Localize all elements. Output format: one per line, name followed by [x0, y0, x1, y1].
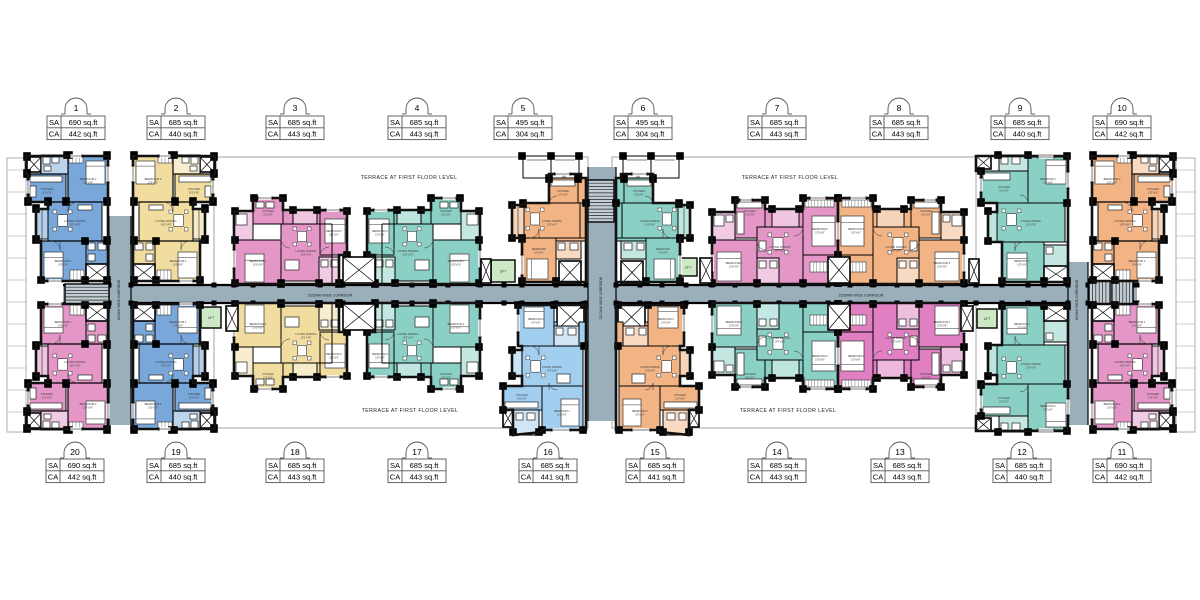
svg-text:KITCHEN: KITCHEN: [744, 209, 756, 213]
svg-text:SA: SA: [496, 118, 506, 127]
svg-text:10'0"x9'6": 10'0"x9'6": [645, 224, 656, 227]
svg-text:10'0"x9'6": 10'0"x9'6": [937, 266, 948, 269]
svg-text:BEDROOM 2: BEDROOM 2: [326, 229, 342, 233]
svg-text:10'0"x9'6": 10'0"x9'6": [517, 399, 527, 401]
svg-text:10'0"x9'6": 10'0"x9'6": [402, 253, 413, 257]
svg-text:10'0"x9'6": 10'0"x9'6": [815, 233, 825, 235]
svg-text:LIVING DINING: LIVING DINING: [542, 365, 562, 369]
svg-text:10'0"x9'6": 10'0"x9'6": [1119, 364, 1130, 368]
svg-text:LIVING DINING: LIVING DINING: [155, 360, 177, 364]
svg-text:LIVING DINING: LIVING DINING: [1021, 219, 1041, 223]
svg-text:690 sq.ft: 690 sq.ft: [69, 118, 99, 127]
svg-text:BEDROOM 1: BEDROOM 1: [1129, 259, 1146, 263]
svg-text:KITCHEN: KITCHEN: [744, 372, 756, 376]
svg-text:SA: SA: [1095, 118, 1105, 127]
svg-text:10'0"x9'6": 10'0"x9'6": [1043, 410, 1053, 412]
svg-text:690 sq.ft: 690 sq.ft: [1115, 461, 1145, 470]
svg-text:14: 14: [772, 447, 782, 457]
svg-text:10'0"x9'6": 10'0"x9'6": [1148, 397, 1159, 400]
svg-text:10'0"x9'6": 10'0"x9'6": [148, 407, 159, 410]
svg-text:CA: CA: [49, 130, 59, 139]
svg-text:BEDROOM: BEDROOM: [532, 247, 545, 251]
svg-text:BEDROOM 1: BEDROOM 1: [934, 320, 951, 324]
svg-text:CA: CA: [873, 473, 883, 482]
svg-text:440 sq.ft: 440 sq.ft: [169, 473, 199, 482]
svg-text:440 sq.ft: 440 sq.ft: [1013, 130, 1043, 139]
svg-text:10'0"x9'6": 10'0"x9'6": [1026, 224, 1037, 227]
svg-text:10'0"x9'6": 10'0"x9'6": [451, 264, 462, 267]
svg-text:10'0"x9'6": 10'0"x9'6": [58, 325, 69, 328]
svg-text:10'0"x9'6": 10'0"x9'6": [451, 327, 462, 330]
svg-text:10'0"x9'6": 10'0"x9'6": [1148, 192, 1159, 195]
svg-text:10'0"x9'6": 10'0"x9'6": [1017, 265, 1027, 267]
svg-text:TERRACE AT FIRST FLOOR LEVEL: TERRACE AT FIRST FLOOR LEVEL: [361, 175, 458, 181]
svg-text:443 sq.ft: 443 sq.ft: [892, 130, 922, 139]
svg-text:20: 20: [70, 447, 80, 457]
svg-text:442 sq.ft: 442 sq.ft: [1115, 130, 1145, 139]
svg-text:LIVING DINING: LIVING DINING: [295, 249, 317, 253]
svg-text:LIFT: LIFT: [984, 317, 991, 321]
svg-text:SA: SA: [873, 461, 883, 470]
svg-text:10'0"x9'6": 10'0"x9'6": [547, 224, 558, 227]
svg-text:KITCHEN: KITCHEN: [557, 189, 569, 193]
svg-text:SA: SA: [390, 118, 400, 127]
svg-text:KITCHEN: KITCHEN: [440, 209, 452, 213]
svg-text:KITCHEN: KITCHEN: [1147, 187, 1159, 191]
svg-text:LIVING DINING: LIVING DINING: [1021, 362, 1041, 366]
svg-text:SA: SA: [268, 118, 278, 127]
svg-text:LIVING DINING: LIVING DINING: [769, 336, 791, 340]
svg-text:10'0"x9'6": 10'0"x9'6": [253, 327, 264, 330]
svg-text:BEDROOM 2: BEDROOM 2: [372, 229, 388, 233]
svg-text:685 sq.ft: 685 sq.ft: [648, 461, 678, 470]
svg-text:441 sq.ft: 441 sq.ft: [648, 473, 678, 482]
svg-text:10'0"x9'6": 10'0"x9'6": [999, 191, 1009, 193]
svg-text:443 sq.ft: 443 sq.ft: [410, 473, 440, 482]
svg-text:443 sq.ft: 443 sq.ft: [288, 130, 318, 139]
svg-text:LIVING DINING: LIVING DINING: [769, 245, 791, 249]
svg-text:BEDROOM 1: BEDROOM 1: [448, 322, 465, 326]
svg-text:SA: SA: [521, 461, 531, 470]
svg-text:4: 4: [415, 103, 420, 113]
svg-text:CA: CA: [616, 130, 626, 139]
svg-text:BEDROOM 1: BEDROOM 1: [934, 261, 951, 265]
svg-text:LIVING DINING: LIVING DINING: [295, 332, 317, 336]
svg-text:CA: CA: [149, 130, 159, 139]
svg-text:KITCHEN: KITCHEN: [633, 189, 645, 193]
svg-text:10'0"x9'6": 10'0"x9'6": [815, 360, 825, 362]
svg-text:443 sq.ft: 443 sq.ft: [410, 130, 440, 139]
svg-text:BEDROOM 2: BEDROOM 2: [326, 352, 342, 356]
svg-text:SA: SA: [268, 461, 278, 470]
svg-text:685 sq.ft: 685 sq.ft: [770, 461, 800, 470]
svg-text:SA: SA: [628, 461, 638, 470]
svg-text:BEDROOM 1: BEDROOM 1: [726, 261, 743, 265]
svg-text:10'0"x9'6": 10'0"x9'6": [745, 215, 755, 217]
svg-text:443 sq.ft: 443 sq.ft: [288, 473, 318, 482]
svg-text:BEDROOM 1: BEDROOM 1: [554, 409, 570, 413]
svg-text:SA: SA: [995, 461, 1005, 470]
svg-text:10'0"x9'6": 10'0"x9'6": [1026, 367, 1037, 370]
svg-text:10'0"x9'6": 10'0"x9'6": [634, 195, 644, 197]
svg-text:BEDROOM 2: BEDROOM 2: [1104, 177, 1121, 181]
svg-text:13: 13: [895, 447, 905, 457]
svg-text:10'0"x9'6": 10'0"x9'6": [534, 253, 544, 255]
svg-text:685 sq.ft: 685 sq.ft: [410, 118, 440, 127]
svg-text:BEDROOM: BEDROOM: [656, 247, 669, 251]
svg-text:690 sq.ft: 690 sq.ft: [68, 461, 98, 470]
svg-text:10'0"x9'6": 10'0"x9'6": [890, 249, 901, 253]
svg-text:KITCHEN: KITCHEN: [188, 187, 200, 191]
svg-text:CA: CA: [1095, 473, 1105, 482]
svg-text:LIVING DINING: LIVING DINING: [542, 219, 562, 223]
svg-text:10'0"x9'6": 10'0"x9'6": [531, 323, 541, 325]
svg-text:LIFT: LIFT: [685, 266, 692, 270]
svg-text:TERRACE AT FIRST FLOOR LEVEL: TERRACE AT FIRST FLOOR LEVEL: [742, 175, 839, 181]
svg-text:5: 5: [521, 103, 526, 113]
svg-text:10'0"x9'6": 10'0"x9'6": [558, 195, 568, 197]
svg-text:11: 11: [1118, 447, 1127, 457]
svg-text:10'0"x9'6": 10'0"x9'6": [69, 364, 80, 368]
svg-text:SA: SA: [750, 461, 760, 470]
svg-text:10'0"x9'6": 10'0"x9'6": [557, 415, 567, 417]
svg-text:KITCHEN: KITCHEN: [674, 393, 686, 397]
svg-text:BEDROOM 1: BEDROOM 1: [170, 320, 187, 324]
svg-text:18: 18: [290, 447, 300, 457]
svg-text:10'0"x9'6": 10'0"x9'6": [263, 378, 273, 380]
svg-text:10'0"x9'6": 10'0"x9'6": [83, 182, 94, 185]
svg-text:10'0"x9'6": 10'0"x9'6": [890, 340, 901, 344]
svg-text:10'0"x9'6": 10'0"x9'6": [851, 233, 861, 235]
svg-text:BEDROOM 1: BEDROOM 1: [250, 259, 267, 263]
svg-text:10'0"x9'6": 10'0"x9'6": [729, 266, 740, 269]
svg-text:10'0"x9'6": 10'0"x9'6": [1132, 264, 1143, 267]
svg-text:CA: CA: [750, 130, 760, 139]
svg-text:KITCHEN: KITCHEN: [516, 393, 528, 397]
svg-text:10'0"x9'6": 10'0"x9'6": [547, 370, 558, 373]
svg-text:CA: CA: [496, 130, 506, 139]
svg-text:443 sq.ft: 443 sq.ft: [770, 130, 800, 139]
svg-text:LIVING DINING: LIVING DINING: [397, 332, 419, 336]
svg-text:LIFT: LIFT: [500, 270, 507, 274]
svg-text:KITCHEN: KITCHEN: [998, 185, 1010, 189]
svg-text:440 sq.ft: 440 sq.ft: [1015, 473, 1045, 482]
svg-text:BEDROOM 2: BEDROOM 2: [372, 352, 388, 356]
svg-text:LIVING DINING: LIVING DINING: [397, 249, 419, 253]
svg-text:10'0"x9'6": 10'0"x9'6": [189, 397, 200, 400]
svg-text:KITCHEN: KITCHEN: [920, 209, 932, 213]
svg-text:BEDROOM 2: BEDROOM 2: [145, 177, 162, 181]
svg-text:SA: SA: [390, 461, 400, 470]
svg-text:BEDROOM 2: BEDROOM 2: [848, 227, 864, 231]
svg-text:685 sq.ft: 685 sq.ft: [288, 118, 318, 127]
svg-text:BEDROOM 1: BEDROOM 1: [1129, 320, 1146, 324]
svg-text:685 sq.ft: 685 sq.ft: [893, 461, 923, 470]
svg-text:BEDROOM 1: BEDROOM 1: [1040, 404, 1056, 408]
svg-text:10'0"x9'6": 10'0"x9'6": [1132, 325, 1143, 328]
svg-text:KITCHEN: KITCHEN: [188, 392, 200, 396]
svg-text:10'0"x9'6": 10'0"x9'6": [148, 182, 159, 185]
svg-text:BEDROOM 2: BEDROOM 2: [80, 177, 97, 181]
svg-text:10'0"x9'6": 10'0"x9'6": [661, 323, 671, 325]
svg-text:10'0"x9'6": 10'0"x9'6": [173, 325, 184, 328]
svg-text:10'0"x9'6": 10'0"x9'6": [375, 358, 385, 360]
svg-text:BEDROOM 1: BEDROOM 1: [55, 320, 72, 324]
svg-text:10'0"x9'6": 10'0"x9'6": [58, 264, 69, 267]
svg-text:685 sq.ft: 685 sq.ft: [169, 118, 199, 127]
svg-text:LIVING DINING: LIVING DINING: [155, 219, 177, 223]
svg-text:10'0"x9'6": 10'0"x9'6": [745, 378, 755, 380]
svg-text:BEDROOM 1: BEDROOM 1: [726, 320, 743, 324]
svg-text:10'0"x9'6": 10'0"x9'6": [441, 215, 451, 217]
svg-text:SA: SA: [1095, 461, 1105, 470]
svg-text:10'0"x9'6": 10'0"x9'6": [729, 325, 740, 328]
svg-text:BEDROOM 2: BEDROOM 2: [812, 227, 828, 231]
svg-text:10'0"x9'6": 10'0"x9'6": [402, 336, 413, 340]
svg-text:16: 16: [543, 447, 553, 457]
svg-text:10'0"x9'6": 10'0"x9'6": [1107, 182, 1118, 185]
svg-text:10'0"x9'6": 10'0"x9'6": [253, 264, 264, 267]
svg-text:10'0"x9'6": 10'0"x9'6": [160, 364, 171, 368]
svg-text:10'0"x9'6": 10'0"x9'6": [375, 235, 385, 237]
svg-text:TERRACE AT FIRST FLOOR LEVEL: TERRACE AT FIRST FLOOR LEVEL: [362, 408, 459, 414]
svg-text:10'0"x9'6": 10'0"x9'6": [937, 325, 948, 328]
svg-text:10'0"x9'6": 10'0"x9'6": [675, 399, 685, 401]
svg-text:KITCHEN: KITCHEN: [440, 372, 452, 376]
svg-text:BEDROOM 2: BEDROOM 2: [528, 317, 544, 321]
svg-text:SA: SA: [872, 118, 882, 127]
svg-text:TERRACE AT FIRST FLOOR LEVEL: TERRACE AT FIRST FLOOR LEVEL: [740, 408, 837, 414]
svg-text:3: 3: [293, 103, 298, 113]
svg-text:BEDROOM 2: BEDROOM 2: [812, 354, 828, 358]
svg-text:LIVING DINING: LIVING DINING: [64, 360, 86, 364]
svg-text:1525MM WIDE CORRIDOR: 1525MM WIDE CORRIDOR: [839, 294, 884, 298]
svg-text:440 sq.ft: 440 sq.ft: [169, 130, 199, 139]
svg-text:CA: CA: [268, 473, 278, 482]
svg-text:1: 1: [74, 103, 79, 113]
svg-text:BEDROOM 1: BEDROOM 1: [55, 259, 72, 263]
svg-text:10'0"x9'6": 10'0"x9'6": [42, 192, 53, 195]
svg-text:LIVING DINING: LIVING DINING: [1114, 360, 1136, 364]
svg-text:10'0"x9'6": 10'0"x9'6": [1043, 183, 1053, 185]
svg-text:10'0"x9'6": 10'0"x9'6": [160, 223, 171, 227]
svg-text:CA: CA: [390, 473, 400, 482]
svg-text:690 sq.ft: 690 sq.ft: [1115, 118, 1145, 127]
svg-text:1525MM WIDE CORRIDOR: 1525MM WIDE CORRIDOR: [308, 294, 353, 298]
svg-text:2: 2: [174, 103, 179, 113]
svg-text:BEDROOM 1: BEDROOM 1: [170, 259, 187, 263]
svg-text:BEDROOM 2: BEDROOM 2: [1104, 402, 1121, 406]
svg-text:SA: SA: [149, 461, 159, 470]
svg-text:442 sq.ft: 442 sq.ft: [69, 130, 99, 139]
svg-text:SA: SA: [993, 118, 1003, 127]
svg-text:10'0"x9'6": 10'0"x9'6": [921, 378, 931, 380]
svg-text:442 sq.ft: 442 sq.ft: [68, 473, 98, 482]
svg-text:443 sq.ft: 443 sq.ft: [893, 473, 923, 482]
svg-text:10'0"x9'6": 10'0"x9'6": [83, 407, 94, 410]
svg-text:LIVING DINING: LIVING DINING: [64, 219, 86, 223]
svg-text:10'0"x9'6": 10'0"x9'6": [774, 340, 785, 344]
svg-text:10'0"x9'6": 10'0"x9'6": [300, 253, 311, 257]
svg-text:12: 12: [1017, 447, 1027, 457]
svg-text:LIVING DINING: LIVING DINING: [1114, 219, 1136, 223]
svg-text:10'0"x9'6": 10'0"x9'6": [300, 336, 311, 340]
svg-text:10'0"x9'6": 10'0"x9'6": [851, 360, 861, 362]
svg-text:KITCHEN: KITCHEN: [41, 392, 53, 396]
svg-text:LIVING DINING: LIVING DINING: [640, 219, 660, 223]
svg-text:KITCHEN: KITCHEN: [41, 187, 53, 191]
svg-text:9: 9: [1018, 103, 1023, 113]
svg-text:KITCHEN: KITCHEN: [920, 372, 932, 376]
svg-text:BEDROOM 2: BEDROOM 2: [658, 317, 674, 321]
svg-text:CA: CA: [1095, 130, 1105, 139]
svg-text:443 sq.ft: 443 sq.ft: [770, 473, 800, 482]
svg-text:10'0"x9'6": 10'0"x9'6": [42, 397, 53, 400]
svg-text:17: 17: [412, 447, 422, 457]
svg-text:7: 7: [775, 103, 780, 113]
svg-text:LIVING DINING: LIVING DINING: [640, 365, 660, 369]
svg-text:SA: SA: [149, 118, 159, 127]
svg-text:10'0"x9'6": 10'0"x9'6": [329, 235, 339, 237]
svg-text:685 sq.ft: 685 sq.ft: [169, 461, 199, 470]
svg-text:SA: SA: [49, 118, 59, 127]
svg-text:685 sq.ft: 685 sq.ft: [892, 118, 922, 127]
svg-text:685 sq.ft: 685 sq.ft: [770, 118, 800, 127]
svg-text:10'0"x9'6": 10'0"x9'6": [774, 249, 785, 253]
svg-text:BEDROOM 2: BEDROOM 2: [80, 402, 97, 406]
svg-text:495 sq.ft: 495 sq.ft: [516, 118, 546, 127]
svg-text:10: 10: [1117, 103, 1127, 113]
svg-text:KITCHEN: KITCHEN: [262, 372, 274, 376]
svg-text:10'0"x9'6": 10'0"x9'6": [1017, 328, 1027, 330]
svg-text:685 sq.ft: 685 sq.ft: [288, 461, 318, 470]
svg-text:BEDROOM 2: BEDROOM 2: [1014, 322, 1030, 326]
svg-text:CA: CA: [268, 130, 278, 139]
svg-text:LIVING DINING: LIVING DINING: [885, 245, 907, 249]
svg-text:450MM WIDE CORRIDOR: 450MM WIDE CORRIDOR: [117, 279, 121, 320]
svg-text:KITCHEN: KITCHEN: [262, 209, 274, 213]
svg-text:CA: CA: [993, 130, 1003, 139]
svg-text:441 sq.ft: 441 sq.ft: [541, 473, 571, 482]
svg-text:CA: CA: [628, 473, 638, 482]
svg-text:BEDROOM 2: BEDROOM 2: [1014, 259, 1030, 263]
svg-text:8: 8: [897, 103, 902, 113]
svg-text:10'0"x9'6": 10'0"x9'6": [999, 402, 1009, 404]
svg-text:10'0"x9'6": 10'0"x9'6": [441, 378, 451, 380]
svg-text:CA: CA: [521, 473, 531, 482]
svg-text:BEDROOM 1: BEDROOM 1: [632, 409, 648, 413]
svg-text:15: 15: [650, 447, 660, 457]
svg-text:10'0"x9'6": 10'0"x9'6": [645, 370, 656, 373]
svg-text:2200MM WIDE CORRIDOR: 2200MM WIDE CORRIDOR: [599, 276, 603, 319]
svg-text:304 sq.ft: 304 sq.ft: [516, 130, 546, 139]
svg-text:KITCHEN: KITCHEN: [998, 396, 1010, 400]
svg-text:BEDROOM 1: BEDROOM 1: [1040, 177, 1056, 181]
svg-text:495 sq.ft: 495 sq.ft: [636, 118, 666, 127]
svg-text:BEDROOM 2: BEDROOM 2: [848, 354, 864, 358]
svg-text:LIVING DINING: LIVING DINING: [885, 336, 907, 340]
svg-text:CA: CA: [48, 473, 58, 482]
svg-text:10'0"x9'6": 10'0"x9'6": [329, 358, 339, 360]
svg-text:10'0"x9'6": 10'0"x9'6": [1119, 223, 1130, 227]
svg-text:19: 19: [171, 447, 181, 457]
svg-text:10'0"x9'6": 10'0"x9'6": [635, 415, 645, 417]
svg-text:SA: SA: [616, 118, 626, 127]
svg-text:CA: CA: [750, 473, 760, 482]
svg-text:10'0"x9'6": 10'0"x9'6": [658, 253, 668, 255]
svg-text:BEDROOM 1: BEDROOM 1: [448, 259, 465, 263]
svg-text:685 sq.ft: 685 sq.ft: [541, 461, 571, 470]
svg-text:685 sq.ft: 685 sq.ft: [1013, 118, 1043, 127]
svg-text:KITCHEN: KITCHEN: [1147, 392, 1159, 396]
svg-text:450MM WIDE CORRIDOR: 450MM WIDE CORRIDOR: [1075, 279, 1079, 320]
svg-text:CA: CA: [872, 130, 882, 139]
svg-text:BEDROOM 2: BEDROOM 2: [145, 402, 162, 406]
svg-text:LIFT: LIFT: [208, 316, 215, 320]
svg-text:442 sq.ft: 442 sq.ft: [1115, 473, 1145, 482]
svg-text:SA: SA: [48, 461, 58, 470]
svg-text:CA: CA: [149, 473, 159, 482]
svg-text:6: 6: [641, 103, 646, 113]
svg-text:10'0"x9'6": 10'0"x9'6": [921, 215, 931, 217]
svg-text:BEDROOM 1: BEDROOM 1: [250, 322, 267, 326]
svg-text:685 sq.ft: 685 sq.ft: [410, 461, 440, 470]
svg-text:SA: SA: [750, 118, 760, 127]
svg-text:685 sq.ft: 685 sq.ft: [1015, 461, 1045, 470]
svg-text:CA: CA: [390, 130, 400, 139]
svg-text:CA: CA: [995, 473, 1005, 482]
svg-text:10'0"x9'6": 10'0"x9'6": [1107, 407, 1118, 410]
svg-text:10'0"x9'6": 10'0"x9'6": [263, 215, 273, 217]
svg-text:10'0"x9'6": 10'0"x9'6": [189, 192, 200, 195]
svg-text:10'0"x9'6": 10'0"x9'6": [173, 264, 184, 267]
svg-text:10'0"x9'6": 10'0"x9'6": [69, 223, 80, 227]
svg-text:304 sq.ft: 304 sq.ft: [636, 130, 666, 139]
